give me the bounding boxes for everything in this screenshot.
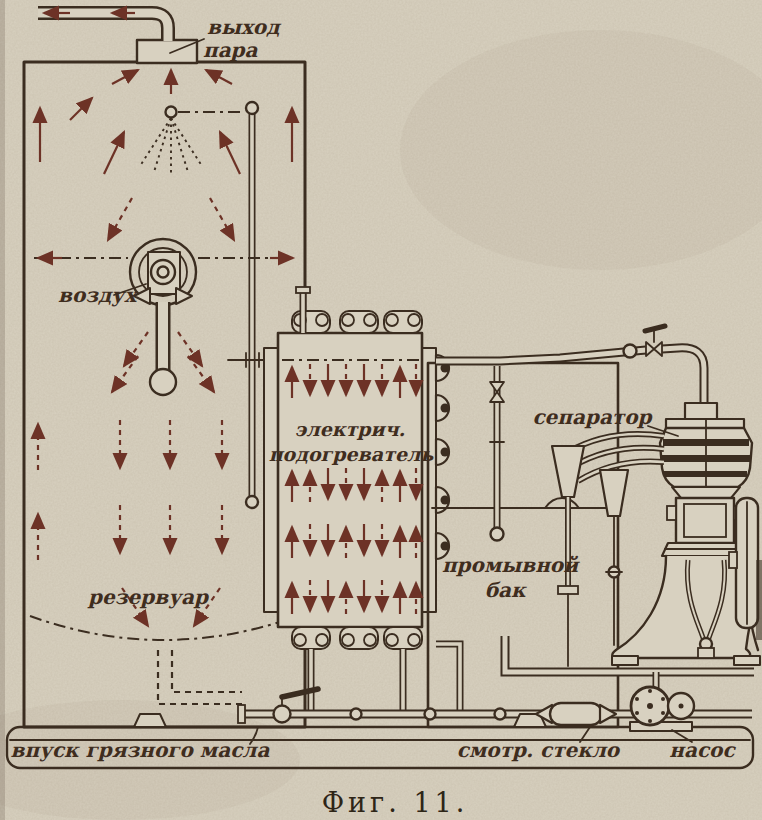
oil-purifier-diagram: выход пара воздух резервуар электрич. по…	[0, 0, 762, 820]
figure-caption: Фиг. 11.	[322, 787, 469, 818]
separator-label: сепаратор	[532, 405, 653, 429]
pipe-support	[134, 714, 166, 727]
wash-tank-label-line2: бак	[485, 578, 527, 602]
scanned-figure-page: выход пара воздух резервуар электрич. по…	[0, 0, 762, 820]
electric-heater-label-line2: подогреватель	[269, 443, 435, 465]
reservoir-label: резервуар	[87, 585, 210, 609]
steam-outlet-label-line2: пара	[203, 38, 259, 62]
dirty-oil-inlet-label: впуск грязного масла	[11, 738, 271, 762]
heater-bottom-stubs	[292, 627, 422, 649]
electric-heater	[264, 287, 450, 649]
sight-glass-label: смотр. стекло	[457, 738, 621, 762]
pump-label: насос	[669, 738, 736, 762]
steam-outlet-label-line1: выход	[207, 15, 282, 39]
wash-tank-label-line1: промывной	[442, 553, 580, 577]
air-label: воздух	[58, 283, 139, 307]
electric-heater-label-line1: электрич.	[295, 418, 405, 440]
pump	[630, 687, 694, 731]
sight-glass	[536, 703, 616, 725]
label-air: воздух	[58, 283, 146, 307]
